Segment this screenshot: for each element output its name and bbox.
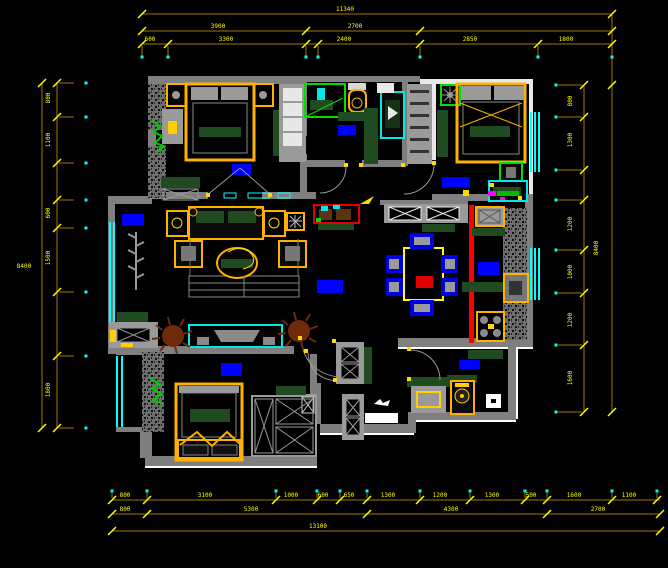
wall-bath-bottom-a (307, 160, 345, 167)
door-hinge-dot (432, 161, 436, 165)
foyer-green-shelf (364, 347, 372, 384)
bed2-wardrobe-green (437, 110, 448, 157)
window-bed2-right-1 (530, 112, 532, 172)
tv-speaker-left (197, 337, 209, 345)
axis-dot (555, 249, 558, 252)
bed1-wardrobe-cell-3 (283, 118, 302, 131)
bed1-blanket (199, 127, 241, 137)
burner-3 (480, 329, 488, 337)
bed2-chair-seat (506, 167, 516, 178)
bed1-dresser-knob (168, 121, 177, 134)
dim-label: 3900 (211, 23, 226, 30)
dim-label: 800 (120, 492, 131, 499)
edge-foyer-bottom (320, 433, 414, 435)
bed2-blanket (470, 126, 510, 137)
door-hinge-dot (344, 163, 348, 167)
window-seat-knob-2 (121, 343, 133, 347)
shelf-rung-5 (410, 138, 429, 141)
shelf-rung-4 (410, 126, 429, 129)
room-label-bedroom3 (221, 363, 242, 376)
room-label-bath2 (459, 360, 480, 369)
dim-label: 1200 (433, 492, 448, 499)
wall-bath2-right (508, 347, 516, 419)
room-label-kitchen (478, 262, 499, 275)
dining-chair-w2-seat (389, 282, 399, 292)
axis-dot (555, 169, 558, 172)
bed1-pillow-left (191, 87, 218, 100)
sofa-side-table-right (264, 211, 285, 236)
axis-dot (555, 292, 558, 295)
wall-bed3-sw (140, 432, 152, 458)
hall-cab-item-5 (316, 218, 321, 222)
axis-dot (85, 82, 88, 85)
hall-green-shelf (318, 224, 354, 230)
axis-dot (317, 56, 320, 59)
burner-2 (493, 316, 501, 324)
washer-drum-dot (460, 394, 464, 398)
sofa-side-table-left (167, 211, 188, 236)
washing-machine-panel (455, 383, 469, 387)
entry-north-icon (374, 399, 390, 406)
bed2-door-arc (404, 164, 434, 194)
door-hinge-dot (359, 163, 363, 167)
entry-door-arc (301, 340, 338, 377)
bath2-green-shelf (468, 350, 503, 359)
window-kitchen-right-1 (530, 248, 532, 300)
clock-star (289, 215, 302, 228)
window-seat-knob (110, 330, 116, 342)
door-hinge-dot (333, 378, 337, 382)
axis-dot (167, 56, 170, 59)
dim-label: 2400 (337, 36, 352, 43)
kitchen-stove-knob (488, 324, 494, 329)
desk-dot-yellow (489, 183, 494, 187)
dim-label: 1300 (567, 132, 574, 147)
bath-door-arc (320, 167, 346, 193)
dim-label: 800 (567, 95, 574, 106)
axis-dot (305, 56, 308, 59)
axis-dot (419, 56, 422, 59)
axis-dot (611, 56, 614, 59)
dim-label: 1600 (567, 370, 574, 385)
dim-label: 600 (318, 492, 329, 499)
dim-label: 13100 (309, 523, 327, 530)
dim-label: 4300 (444, 506, 459, 513)
bed1-door-leaf-b (240, 168, 272, 196)
door-hinge-dot (407, 377, 411, 381)
room-label-living (317, 280, 343, 293)
bed3-headboard (179, 386, 239, 393)
axis-dot (546, 490, 549, 493)
shelf-rung-6 (410, 150, 429, 153)
shelf-rung-2 (410, 102, 429, 105)
door-hinge-dot (332, 339, 336, 343)
floorplan-canvas[interactable]: 1134039002700600330024002850180080011006… (0, 0, 668, 568)
axis-dot (85, 355, 88, 358)
window-bed3-left-1 (116, 356, 118, 427)
axis-dot (555, 411, 558, 414)
axis-dot (611, 490, 614, 493)
axis-dot (85, 227, 88, 230)
axis-dot (85, 291, 88, 294)
dim-label: 2700 (591, 506, 606, 513)
bath2-counter (407, 377, 450, 387)
cad-drawing-area: 1134039002700600330024002850180080011006… (0, 0, 668, 568)
sideboard-green (422, 224, 455, 232)
door-hinge-dot (268, 193, 272, 197)
door-hinge-dot (407, 347, 411, 351)
edge-bath2-right (516, 347, 518, 419)
room-label-bath (338, 125, 356, 135)
axis-dot (141, 56, 144, 59)
hall-cab-item-2 (336, 209, 351, 220)
kitchen-fixture-yellow (463, 190, 469, 196)
kitchen-fixture-green (497, 191, 519, 196)
bed1-bench (161, 177, 200, 188)
axis-dot (339, 490, 342, 493)
living-branch-decor (128, 232, 144, 290)
tv-speaker-right (263, 337, 275, 345)
dining-chair-n-seat (414, 237, 430, 245)
hall-cab-item-4 (333, 205, 340, 209)
plant-left-body (162, 325, 184, 347)
bed1-door-leaf-a (206, 168, 240, 196)
door-hinge-dot (304, 349, 308, 353)
wall-living-step (108, 196, 152, 204)
dim-label: 1300 (485, 492, 500, 499)
axis-dot (85, 199, 88, 202)
sofa-cushion-b (228, 211, 256, 223)
axis-dot (656, 490, 659, 493)
window-kitchen-right-3 (538, 248, 540, 300)
foyer-shoe-cabinet-2-inner (346, 399, 360, 435)
dim-label: 1100 (45, 132, 52, 147)
bath-cabinet (364, 108, 378, 164)
sofa-cushion-a (196, 211, 224, 223)
bed1-wardrobe-cell-1 (283, 88, 302, 101)
axis-dot (85, 116, 88, 119)
dim-label: 8400 (593, 240, 600, 255)
bed3-drawer-2 (212, 445, 237, 455)
axis-dot (469, 490, 472, 493)
axis-dot (275, 490, 278, 493)
entry-label-bar (365, 413, 398, 423)
dim-label: 650 (344, 492, 355, 499)
lamp-left (172, 91, 180, 99)
dim-label: 800 (45, 92, 52, 103)
dining-chair-s-seat (414, 304, 430, 312)
bed1-pillow-right (221, 87, 248, 100)
wall-bed2-left (432, 84, 436, 160)
wall-top-bath (306, 76, 420, 82)
window-bed2-right-3 (538, 112, 540, 172)
door-hinge-dot (298, 336, 302, 340)
shelf-rung-3 (410, 114, 429, 117)
desk-dot-yellow-2 (518, 196, 522, 200)
window-bed3-left-2 (121, 356, 123, 427)
kitchen-fixture-magenta (488, 191, 496, 196)
bay-bed3-bottom (116, 427, 146, 432)
axis-dot (555, 199, 558, 202)
axis-dot (366, 490, 369, 493)
bed3-wardrobe-green (276, 386, 306, 396)
axis-dot (555, 116, 558, 119)
divider-red (469, 205, 474, 343)
door-hinge-dot (206, 193, 210, 197)
edge-bath2-bottom (410, 420, 516, 422)
dim-label: 1300 (381, 492, 396, 499)
window-bed2-right-2 (534, 112, 536, 172)
living-bench-west (117, 312, 148, 323)
bed1-wardrobe-green (273, 110, 279, 156)
bath-shelf (338, 112, 364, 121)
axis-dot (555, 84, 558, 87)
lamp-right (259, 91, 267, 99)
bed1-slider-a (224, 193, 236, 198)
hatch-bed3 (142, 352, 164, 432)
dining-table-center (416, 276, 433, 288)
kitchen-counter-1 (472, 228, 505, 236)
dim-label: 800 (120, 506, 131, 513)
burner-4 (493, 329, 501, 337)
dining-chair-e1-seat (445, 259, 455, 269)
bath-toilet-tank (348, 83, 366, 90)
bed3-drawer-1 (183, 445, 208, 455)
dim-label: 3100 (198, 492, 213, 499)
dim-label: 1100 (622, 492, 637, 499)
wall-foyer-bottom (320, 424, 414, 433)
room-label-balcony (122, 214, 144, 225)
dim-label: 2700 (348, 23, 363, 30)
dim-label: 1800 (45, 382, 52, 397)
bath-toilet (349, 90, 366, 112)
axis-dot (419, 490, 422, 493)
bed2-pillow-left (461, 86, 491, 100)
bay-bed3-top (116, 350, 146, 355)
bed3-blanket (190, 409, 230, 422)
dining-chair-w1-seat (389, 259, 399, 269)
bath2-toilet-dot (491, 399, 496, 403)
room-label-bedroom2 (442, 177, 470, 187)
kitchen-counter-2 (462, 282, 506, 292)
dim-label: 500 (526, 492, 537, 499)
dim-label: 5300 (244, 506, 259, 513)
dim-label: 3300 (219, 36, 234, 43)
desk-dot-magenta (500, 197, 505, 200)
dim-label: 8400 (17, 263, 32, 270)
bed1-wardrobe-cell-4 (283, 133, 302, 146)
bed2-pillow-right (494, 86, 524, 100)
burner-1 (480, 316, 488, 324)
dim-label: 1200 (567, 312, 574, 327)
bath-niche (377, 83, 394, 93)
dim-label: 1000 (567, 264, 574, 279)
bed1-wardrobe-cell-2 (283, 103, 302, 116)
axis-dot (555, 344, 558, 347)
window-living-left-1 (109, 222, 111, 330)
axis-dot (85, 427, 88, 430)
door-hinge-dot (401, 163, 405, 167)
dining-table (404, 248, 443, 300)
window-living-left-2 (113, 222, 115, 330)
hall-arrow (360, 196, 374, 204)
dim-label: 600 (145, 36, 156, 43)
axis-dot (111, 490, 114, 493)
dim-label: 2850 (463, 36, 478, 43)
foyer-shoe-cabinet-1-inner (341, 347, 359, 379)
tv-set (214, 330, 260, 342)
bed2-drape (460, 103, 522, 127)
dim-label: 11340 (336, 6, 354, 13)
dim-label: 1200 (567, 216, 574, 231)
shelf-rung-1 (410, 90, 429, 93)
dim-label: 1500 (45, 250, 52, 265)
axis-dot (146, 490, 149, 493)
edge-bed3-bottom (145, 466, 317, 468)
dim-label: 1800 (559, 36, 574, 43)
hall-cab-item-3 (321, 206, 328, 211)
dim-label: 600 (45, 207, 52, 218)
axis-dot (85, 162, 88, 165)
fan-hub (447, 92, 453, 98)
window-kitchen-right-2 (534, 248, 536, 300)
bath2-door-arc (410, 350, 440, 380)
armchair-left-seat (181, 246, 196, 261)
dim-label: 1600 (567, 492, 582, 499)
dining-chair-e2-seat (445, 282, 455, 292)
kitchen-sink-basin (509, 281, 522, 295)
axis-dot (537, 56, 540, 59)
dim-label: 1000 (284, 492, 299, 499)
